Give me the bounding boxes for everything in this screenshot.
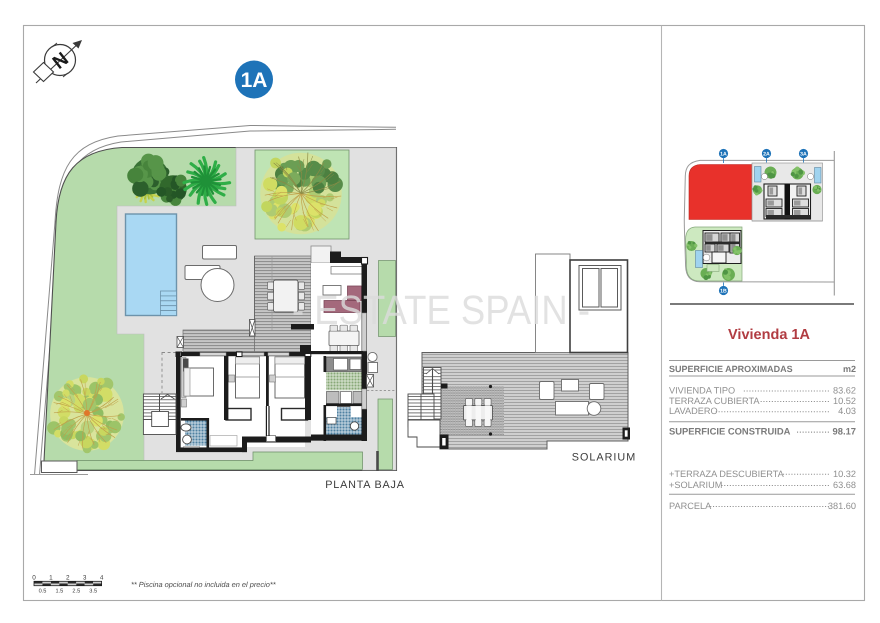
svg-text:2A: 2A [763,152,770,158]
svg-text:0: 0 [32,575,36,582]
svg-text:TERRAZA CUBIERTA: TERRAZA CUBIERTA [669,396,760,406]
svg-text:10.52: 10.52 [833,396,856,406]
svg-text:PARCELA: PARCELA [669,501,712,511]
svg-text:LAVADERO: LAVADERO [669,406,718,416]
svg-text:4: 4 [100,575,104,582]
svg-text:** Piscina opcional no incluid: ** Piscina opcional no incluida en el pr… [131,580,277,589]
svg-text:1.5: 1.5 [56,589,64,595]
svg-text:0.5: 0.5 [39,589,47,595]
svg-text:SUPERFICIE APROXIMADAS: SUPERFICIE APROXIMADAS [669,364,793,374]
svg-text:381.60: 381.60 [828,501,856,511]
svg-text:2.5: 2.5 [72,589,80,595]
svg-text:1B: 1B [720,289,727,295]
svg-text:1A: 1A [720,152,727,158]
svg-text:m2: m2 [843,364,856,374]
svg-text:3: 3 [83,575,87,582]
svg-text:+TERRAZA DESCUBIERTA: +TERRAZA DESCUBIERTA [669,469,785,479]
svg-text:1A: 1A [241,69,268,92]
svg-text:+SOLARIUM: +SOLARIUM [669,480,722,490]
svg-text:98.17: 98.17 [833,426,856,437]
svg-text:63.68: 63.68 [833,480,856,490]
svg-text:VIVIENDA TIPO: VIVIENDA TIPO [669,386,735,396]
svg-text:- ESTATE SPAIN -: - ESTATE SPAIN - [292,287,590,333]
svg-text:4.03: 4.03 [838,406,856,416]
svg-text:83.62: 83.62 [833,386,856,396]
svg-text:SUPERFICIE CONSTRUIDA: SUPERFICIE CONSTRUIDA [669,426,791,437]
svg-text:1: 1 [49,575,53,582]
svg-text:2: 2 [66,575,70,582]
svg-text:SOLARIUM: SOLARIUM [572,452,636,464]
svg-text:PLANTA BAJA: PLANTA BAJA [325,479,404,491]
svg-text:3A: 3A [800,152,807,158]
svg-text:Vivienda 1A: Vivienda 1A [728,327,810,343]
svg-text:10.32: 10.32 [833,469,856,479]
svg-text:3.5: 3.5 [89,589,97,595]
